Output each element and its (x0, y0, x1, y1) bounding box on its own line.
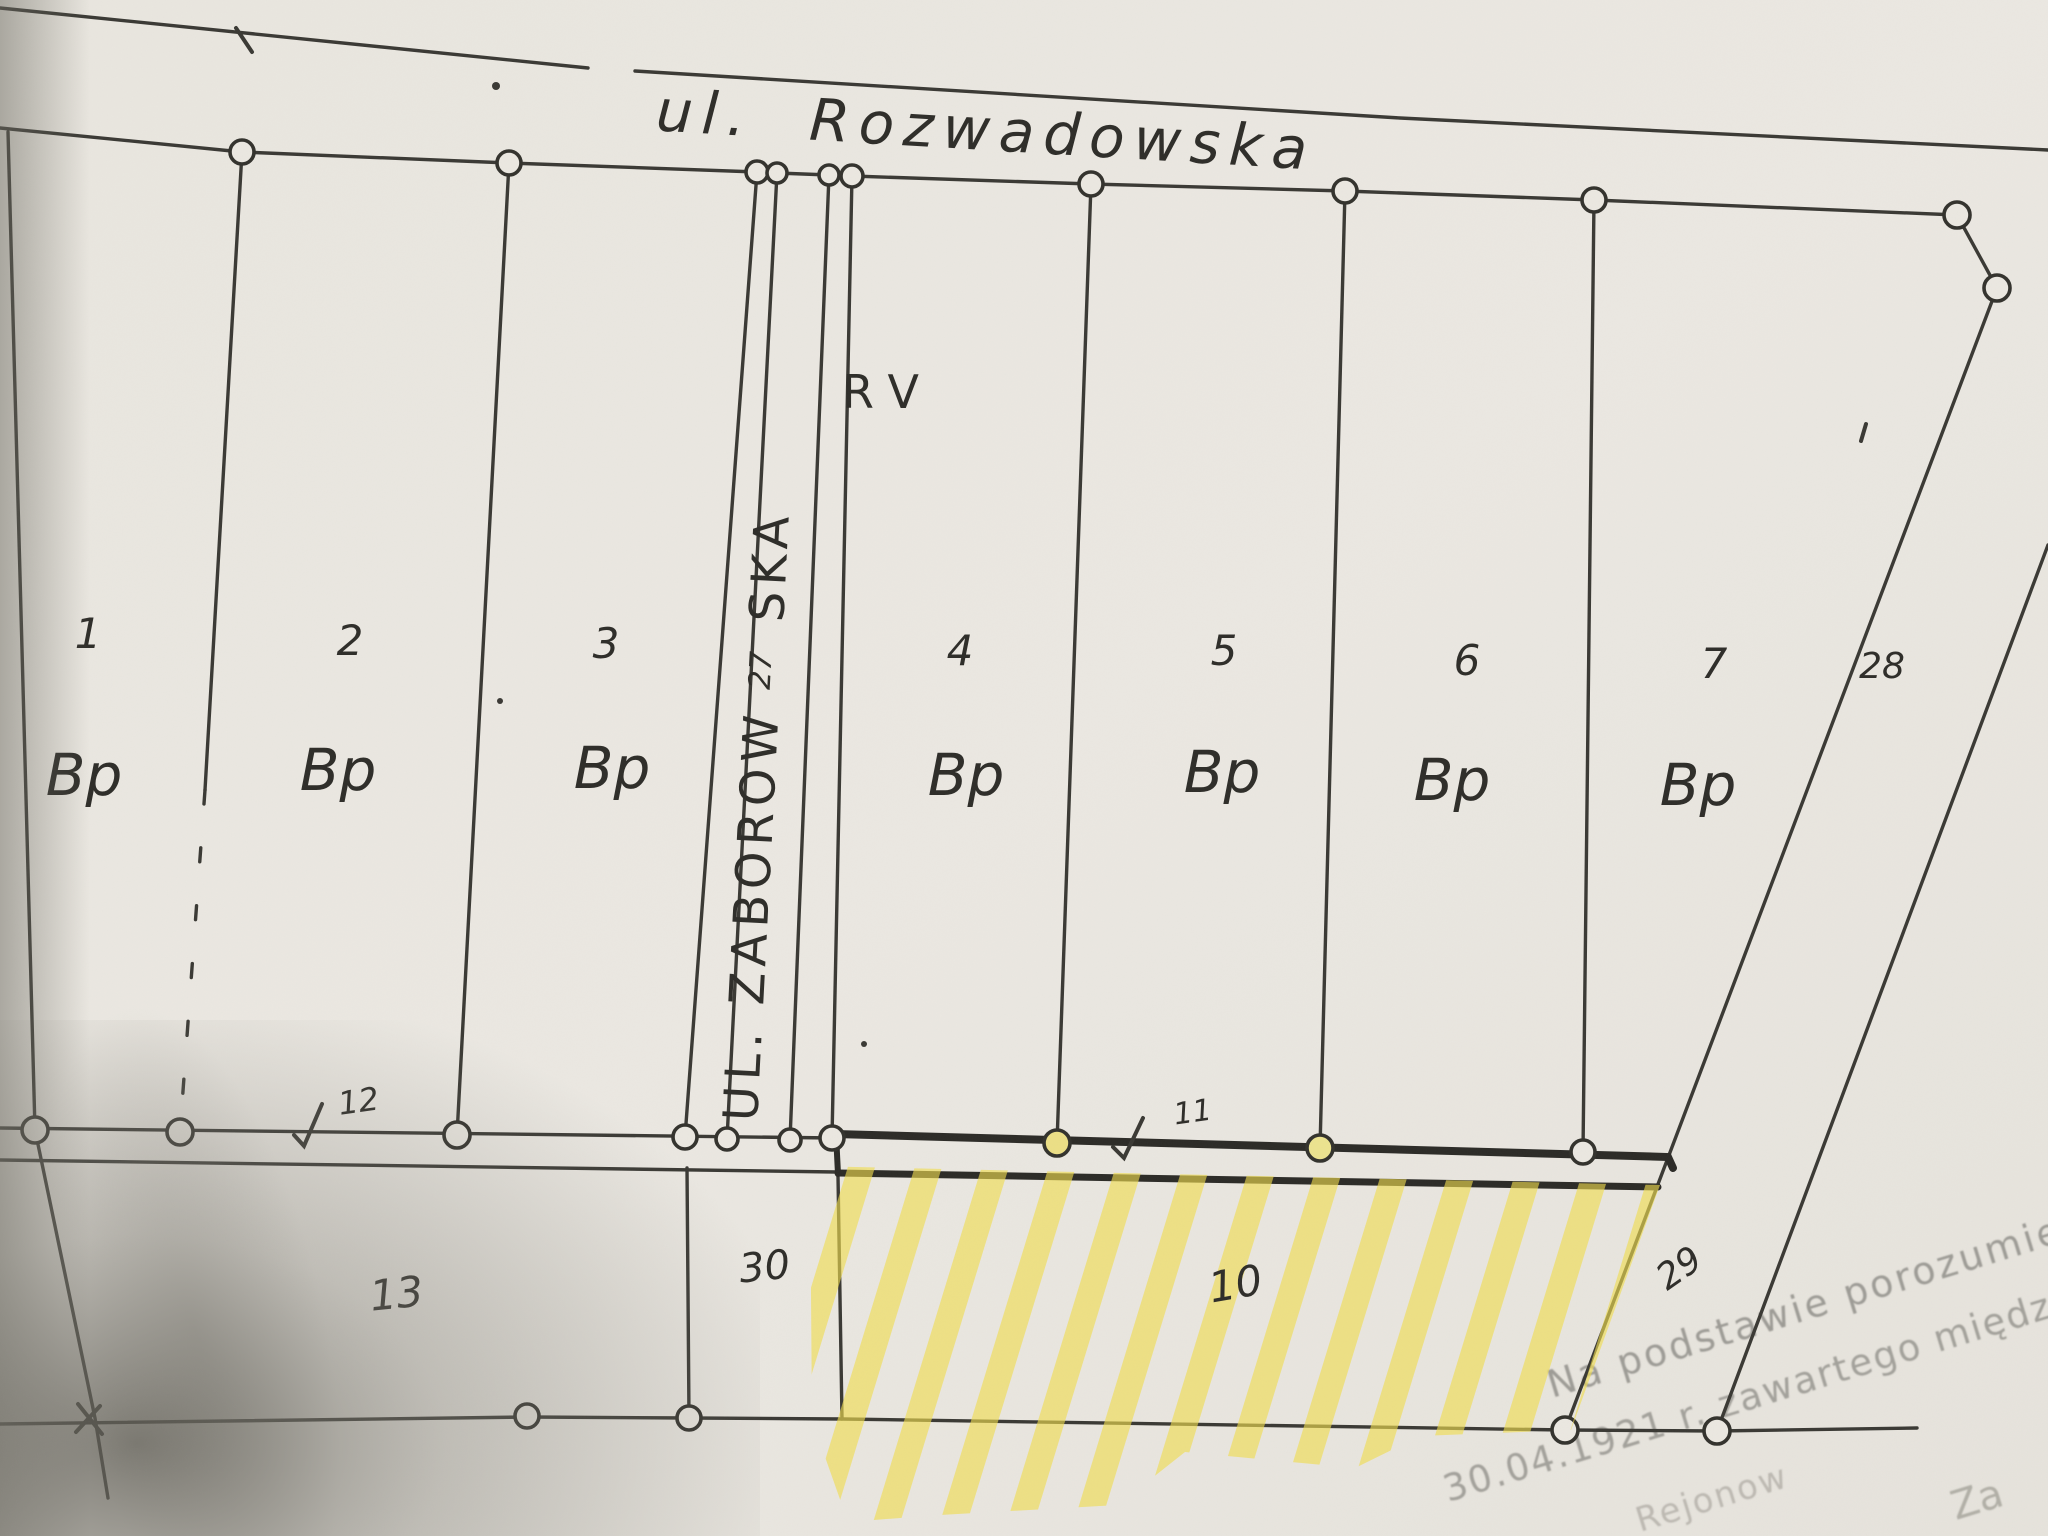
paper-grain (0, 0, 2048, 1536)
scanned-cadastral-map: Na podstawie porozumienia 30.04.1921 r. … (0, 0, 2048, 1536)
cadastral-map-canvas: Na podstawie porozumienia 30.04.1921 r. … (0, 0, 2048, 1536)
